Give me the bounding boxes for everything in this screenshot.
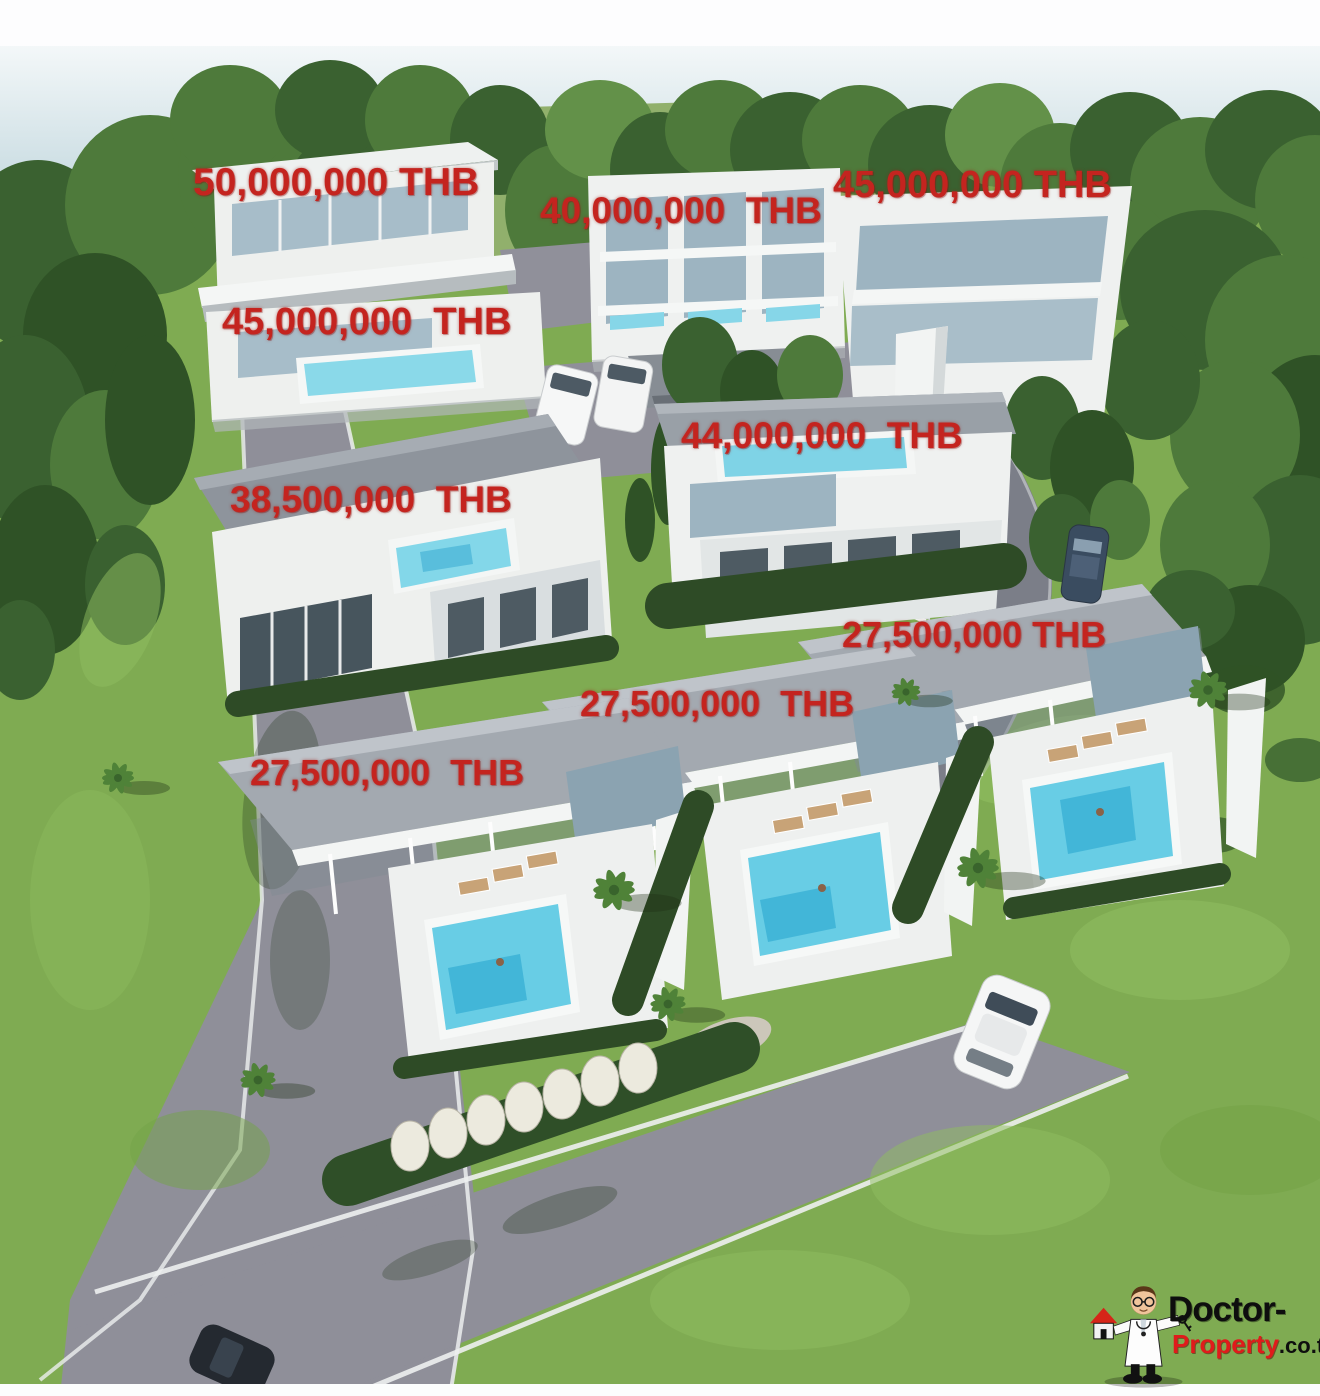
watermark-brand-bottom: Property.co.th — [1172, 1329, 1320, 1360]
price-label-38-5m: 38,500,000 THB — [230, 481, 512, 518]
watermark-doctor-property: Doctor- Property.co.th — [1088, 1276, 1320, 1392]
swimmer — [1096, 808, 1104, 816]
swimmer — [496, 958, 504, 966]
price-label-27-5m-left: 27,500,000 THB — [250, 755, 524, 791]
watermark-brand-top: Doctor- — [1168, 1290, 1285, 1330]
villa-development-render: 50,000,000 THB 40,000,000 THB 45,000,000… — [0, 0, 1320, 1396]
price-label-50m: 50,000,000 THB — [193, 163, 479, 202]
watermark-brand-red: Property — [1172, 1329, 1279, 1359]
price-label-45m-left: 45,000,000 THB — [222, 303, 511, 341]
watermark-brand-suffix: .co.th — [1279, 1333, 1320, 1358]
swimmer — [818, 884, 826, 892]
price-label-27-5m-middle: 27,500,000 THB — [580, 686, 854, 722]
price-label-40m: 40,000,000 THB — [540, 192, 822, 229]
price-label-44m: 44,000,000 THB — [681, 417, 963, 454]
price-label-27-5m-right: 27,500,000 THB — [842, 617, 1106, 653]
price-label-45m-right: 45,000,000 THB — [833, 166, 1112, 204]
red-house-icon — [1090, 1308, 1117, 1339]
